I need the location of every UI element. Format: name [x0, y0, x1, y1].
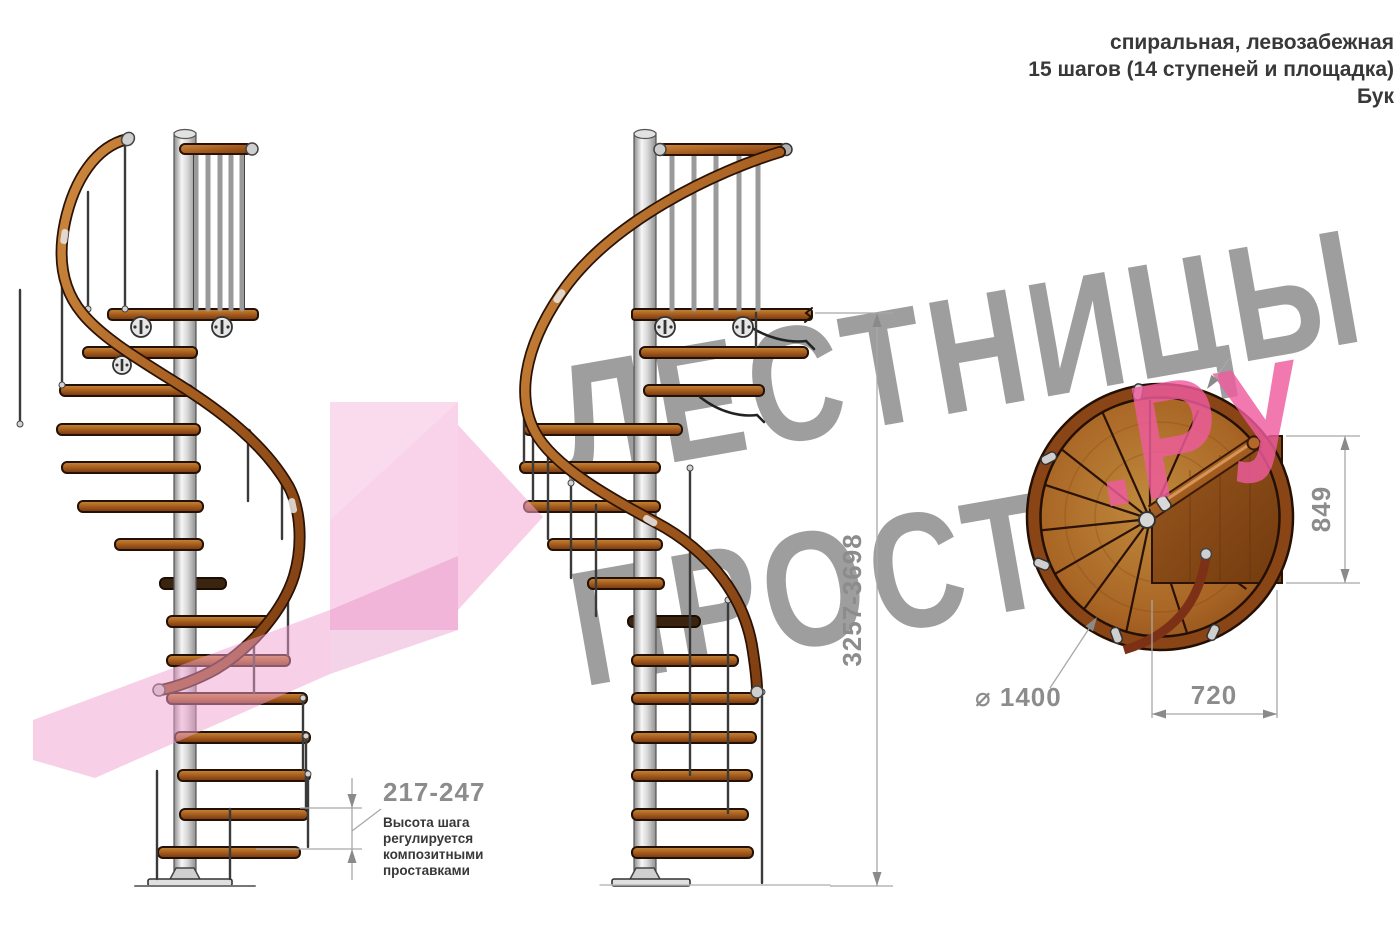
title-material: Бук — [1028, 83, 1394, 110]
title-block: спиральная, левозабежная 15 шагов (14 ст… — [1028, 29, 1394, 110]
technical-drawing-page: ЛЕСТНИЦЫ ПРОСТО — [0, 0, 1400, 949]
title-type: спиральная, левозабежная — [1028, 29, 1394, 56]
staircase-side-view-left — [17, 130, 311, 887]
staircase-side-view-center — [520, 130, 830, 887]
title-steps: 15 шагов (14 ступеней и площадка) — [1028, 56, 1394, 83]
clamp-disc-icon — [113, 317, 232, 374]
